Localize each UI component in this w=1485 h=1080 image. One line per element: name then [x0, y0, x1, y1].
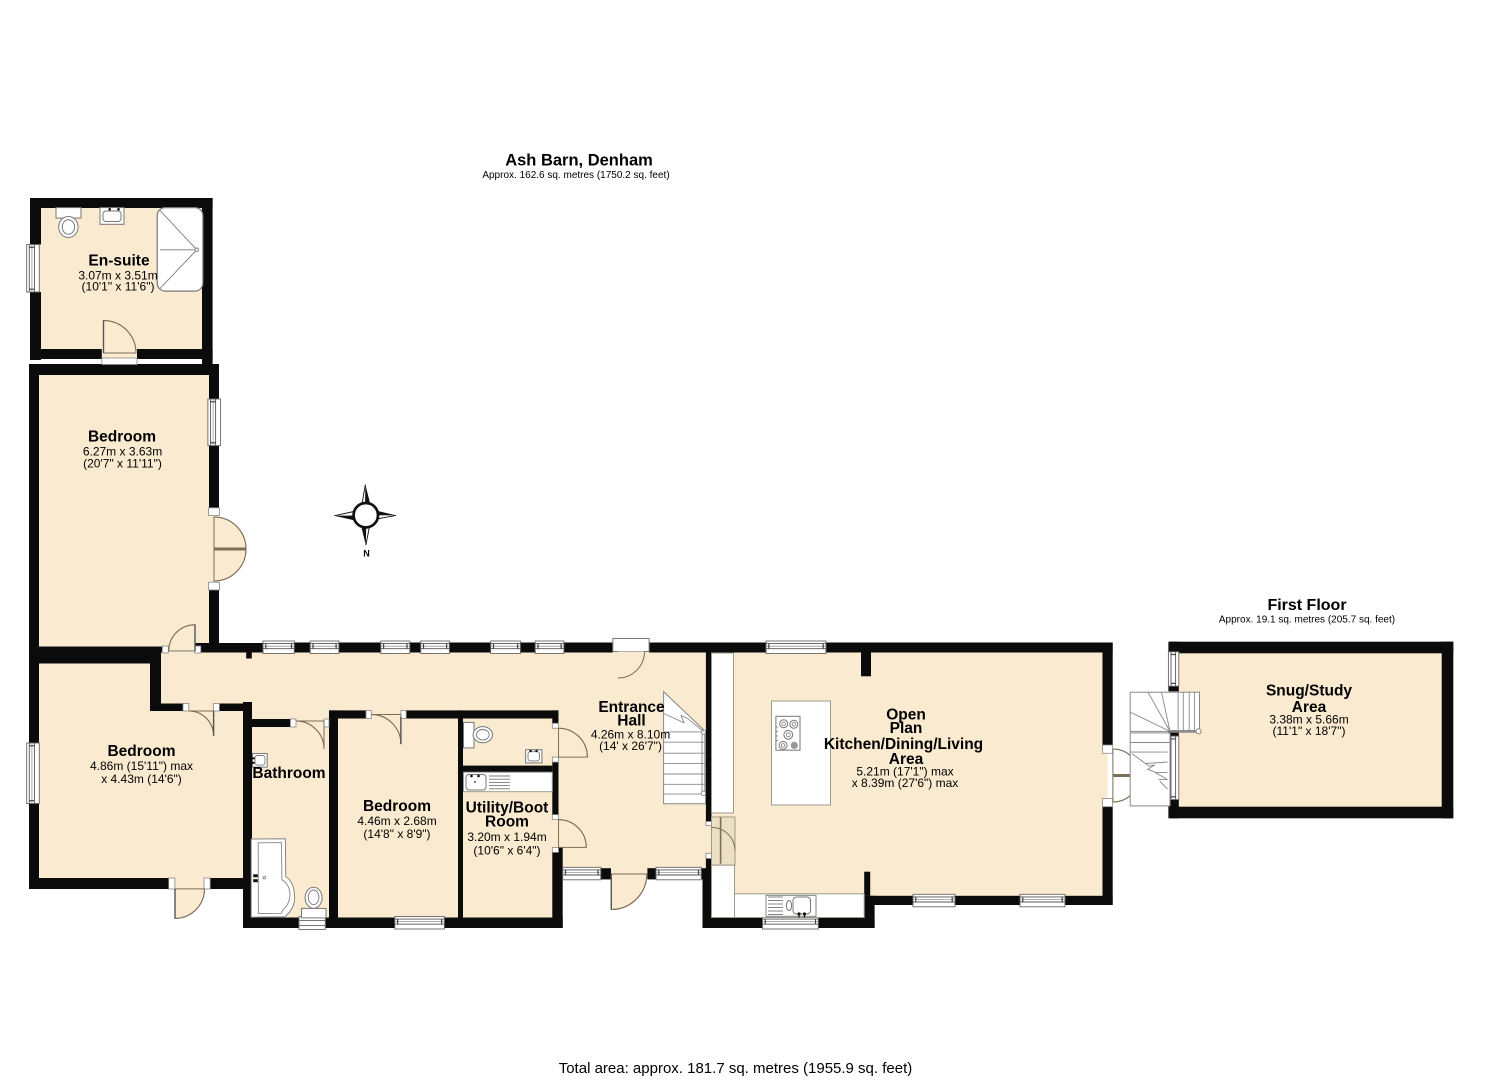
svg-text:Approx. 19.1 sq. metres (205.7: Approx. 19.1 sq. metres (205.7 sq. feet)	[1219, 615, 1395, 626]
svg-text:Total area: approx. 181.7 sq.: Total area: approx. 181.7 sq. metres (19…	[559, 1060, 913, 1077]
svg-text:(10'6" x 6'4"): (10'6" x 6'4")	[473, 844, 540, 858]
svg-text:Bathroom: Bathroom	[252, 765, 325, 782]
svg-text:N: N	[363, 549, 370, 559]
svg-text:Room: Room	[485, 814, 529, 831]
svg-text:En-suite: En-suite	[88, 253, 150, 270]
svg-text:4.46m x 2.68m: 4.46m x 2.68m	[357, 814, 436, 828]
svg-text:(11'1" x 18'7"): (11'1" x 18'7")	[1273, 724, 1346, 738]
svg-text:First Floor: First Floor	[1267, 597, 1346, 614]
svg-text:Plan: Plan	[890, 720, 923, 737]
svg-text:Approx. 162.6 sq. metres (1750: Approx. 162.6 sq. metres (1750.2 sq. fee…	[482, 170, 669, 181]
svg-text:(20'7" x 11'11"): (20'7" x 11'11")	[83, 457, 162, 471]
svg-text:(14' x 26'7"): (14' x 26'7")	[599, 739, 662, 753]
svg-text:Ash Barn, Denham: Ash Barn, Denham	[505, 152, 653, 170]
svg-text:Snug/Study: Snug/Study	[1266, 683, 1352, 700]
svg-text:Bedroom: Bedroom	[88, 429, 156, 446]
svg-text:x 8.39m (27'6") max: x 8.39m (27'6") max	[852, 776, 959, 790]
svg-text:x 4.43m (14'6"): x 4.43m (14'6")	[101, 772, 182, 786]
svg-text:(14'8" x 8'9"): (14'8" x 8'9")	[363, 827, 430, 841]
svg-text:Bedroom: Bedroom	[107, 743, 175, 760]
svg-text:3.20m x 1.94m: 3.20m x 1.94m	[467, 830, 546, 844]
svg-text:4.86m (15'11") max: 4.86m (15'11") max	[90, 759, 193, 773]
svg-text:Bedroom: Bedroom	[363, 798, 431, 815]
svg-text:(10'1" x 11'6"): (10'1" x 11'6")	[82, 280, 155, 294]
